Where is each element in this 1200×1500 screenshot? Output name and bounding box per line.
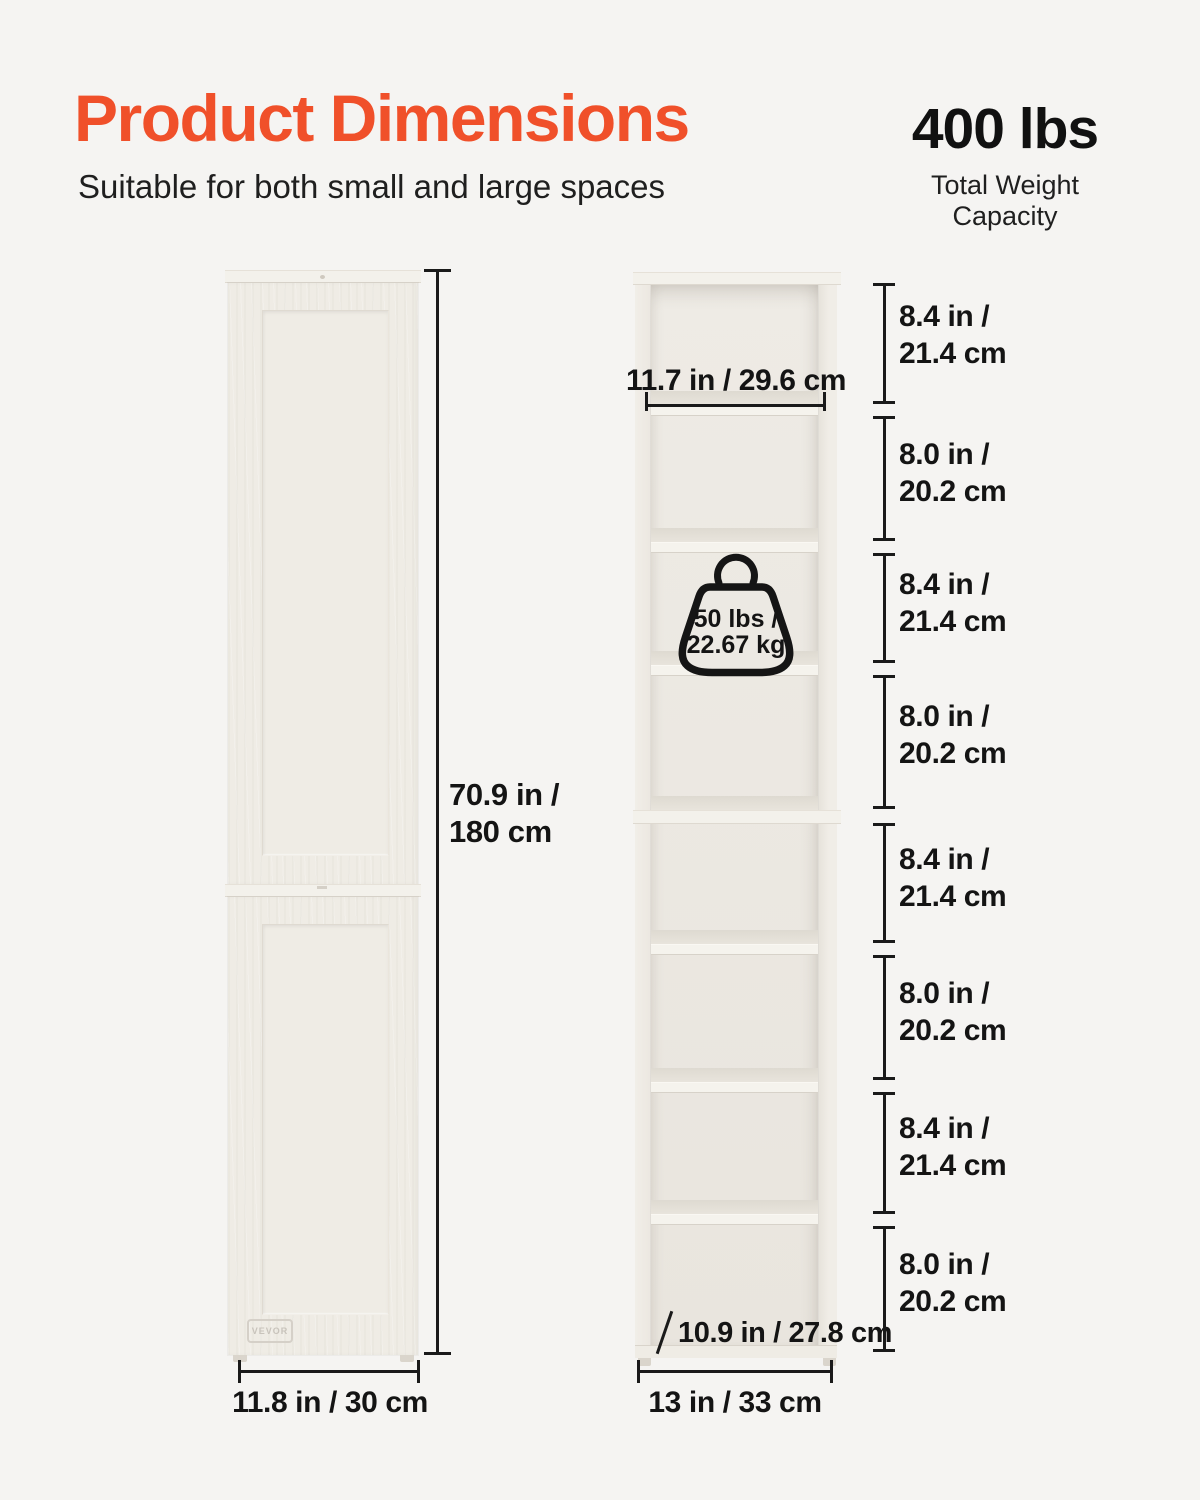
- cabinet-upper-door: [228, 283, 418, 884]
- cabinet-top-fitting-dot: [320, 275, 325, 279]
- shelf-board-front: [651, 1082, 818, 1093]
- total-weight-capacity-label: Total Weight Capacity: [875, 170, 1135, 232]
- compartment-height-label: 8.4 in / 21.4 cm: [899, 1110, 1006, 1184]
- compartment-dim-line: [883, 1092, 886, 1214]
- compartment-dim-cap: [873, 283, 895, 286]
- cabinet-foot-right: [400, 1355, 414, 1362]
- page-title: Product Dimensions: [74, 80, 689, 156]
- compartment-dim-line: [883, 283, 886, 404]
- total-weight-capacity-value: 400 lbs: [875, 96, 1135, 162]
- shelf-board-surface: [651, 930, 818, 944]
- inner-width-tick-left: [645, 392, 648, 411]
- cabinet-lower-door-panel: [262, 924, 389, 1315]
- compartment-dim-cap: [873, 538, 895, 541]
- total-weight-capacity: 400 lbs Total Weight Capacity: [875, 96, 1135, 232]
- product-dimensions-infographic: Product Dimensions Suitable for both sma…: [0, 0, 1200, 1500]
- compartment-dim-cap: [873, 1349, 895, 1352]
- compartment-dim-cap: [873, 955, 895, 958]
- page-subtitle: Suitable for both small and large spaces: [78, 168, 665, 206]
- compartment-height-label: 8.4 in / 21.4 cm: [899, 841, 1006, 915]
- height-dimension-label: 70.9 in / 180 cm: [449, 776, 559, 850]
- cabinet-mid-fitting-mark: [317, 886, 327, 889]
- cabinet-width-tick-left: [238, 1360, 241, 1383]
- compartment-dim-cap: [873, 1226, 895, 1229]
- compartment-dim-line: [883, 416, 886, 541]
- compartment-dim-line: [883, 1226, 886, 1352]
- cabinet-width-tick-right: [417, 1360, 420, 1383]
- height-dimension-line: [436, 270, 439, 1355]
- compartment-height-label: 8.0 in / 20.2 cm: [899, 436, 1006, 510]
- shelf-mid-frame: [633, 810, 841, 824]
- shelf-board-front: [651, 944, 818, 955]
- compartment-height-label: 8.0 in / 20.2 cm: [899, 1246, 1006, 1320]
- inner-width-line: [645, 404, 826, 407]
- compartment-dim-line: [883, 955, 886, 1080]
- shelf-board-front: [651, 1214, 818, 1225]
- compartment-height-label: 8.0 in / 20.2 cm: [899, 975, 1006, 1049]
- cabinet-upper-door-panel: [262, 310, 389, 856]
- depth-label: 10.9 in / 27.8 cm: [678, 1315, 892, 1352]
- shelf-board-surface: [651, 1068, 818, 1082]
- compartment-dim-line: [883, 675, 886, 809]
- shelf-board-surface: [651, 796, 818, 810]
- compartment-dim-cap: [873, 660, 895, 663]
- cabinet-lower-door: [228, 897, 418, 1355]
- compartment-dim-cap: [873, 416, 895, 419]
- height-dimension-cap-top: [424, 269, 451, 272]
- compartment-dim-line: [883, 553, 886, 663]
- compartment-height-label: 8.4 in / 21.4 cm: [899, 566, 1006, 640]
- compartment-dim-cap: [873, 823, 895, 826]
- shelf-board-surface: [651, 1200, 818, 1214]
- compartment-dim-cap: [873, 401, 895, 404]
- compartment-dim-line: [883, 823, 886, 943]
- compartment-dim-cap: [873, 1077, 895, 1080]
- compartment-dim-cap: [873, 806, 895, 809]
- base-width-line: [637, 1370, 833, 1373]
- shelf-top-edge: [633, 272, 841, 285]
- cabinet-width-label: 11.8 in / 30 cm: [208, 1384, 452, 1421]
- cabinet-width-line: [238, 1370, 420, 1373]
- compartment-dim-cap: [873, 940, 895, 943]
- compartment-dim-cap: [873, 1211, 895, 1214]
- compartment-dim-cap: [873, 1092, 895, 1095]
- inner-width-tick-right: [823, 392, 826, 411]
- height-dimension-cap-bottom: [424, 1352, 451, 1355]
- compartment-height-label: 8.0 in / 20.2 cm: [899, 698, 1006, 772]
- compartment-dim-cap: [873, 675, 895, 678]
- shelf-board-surface: [651, 528, 818, 542]
- weight-icon-label: 50 lbs / 22.67 kg: [666, 606, 806, 658]
- base-width-tick-right: [830, 1360, 833, 1383]
- base-width-tick-left: [637, 1360, 640, 1383]
- brand-watermark: VEVOR: [247, 1319, 293, 1343]
- base-width-label: 13 in / 33 cm: [615, 1384, 855, 1421]
- compartment-dim-cap: [873, 553, 895, 556]
- compartment-height-label: 8.4 in / 21.4 cm: [899, 298, 1006, 372]
- inner-width-label: 11.7 in / 29.6 cm: [616, 362, 856, 399]
